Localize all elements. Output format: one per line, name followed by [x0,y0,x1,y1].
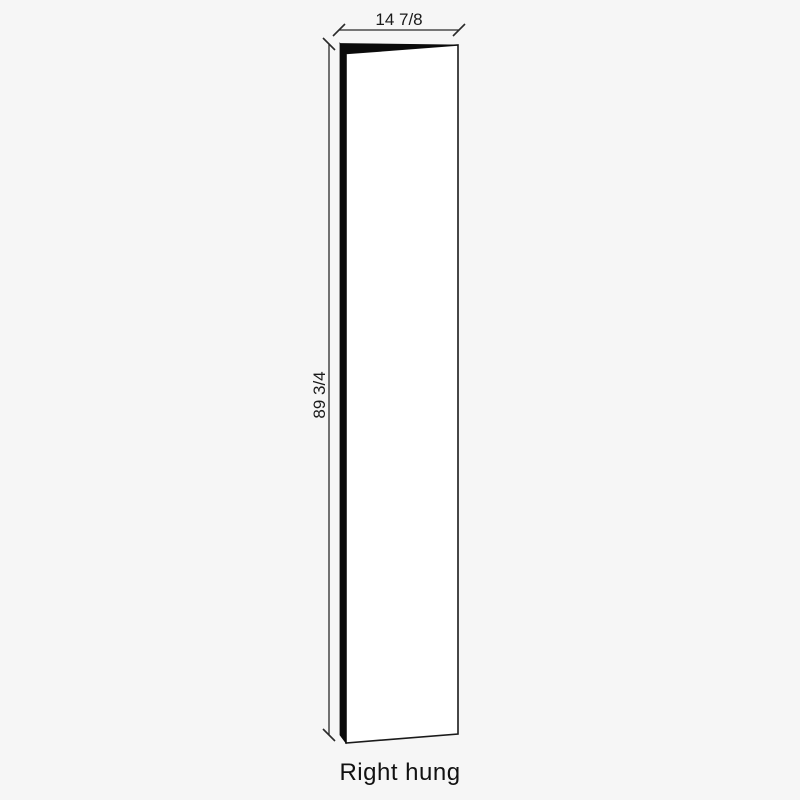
height-dimension-label: 89 3/4 [310,371,329,418]
width-dimension-label: 14 7/8 [375,10,422,29]
door-front-face [346,45,458,743]
diagram-caption: Right hung [339,759,460,786]
door-diagram: 14 7/8 89 3/4 Right hung [0,0,800,800]
door-diagram-canvas: 14 7/8 89 3/4 Right hung [0,0,800,800]
door-side-edge [340,44,346,744]
